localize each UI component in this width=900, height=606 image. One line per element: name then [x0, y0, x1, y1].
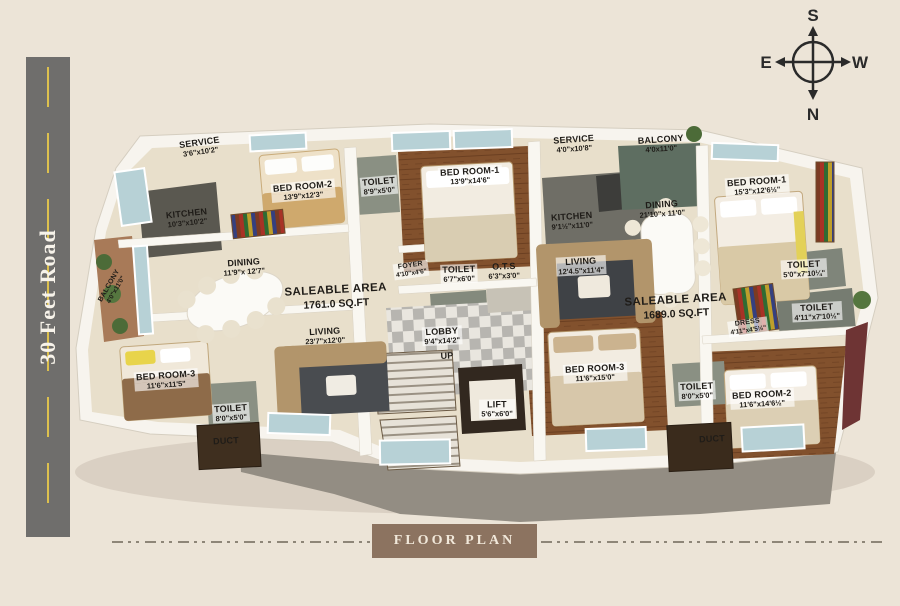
compass-east: E	[760, 53, 771, 72]
room-name: DUCT	[699, 433, 725, 445]
label-toilet-e: TOILET 4'11"x7'10½"	[792, 301, 843, 323]
label-duct-right: DUCT	[699, 433, 725, 445]
floor-plan-title: FLOOR PLAN	[372, 524, 537, 558]
label-toilet-c: TOILET 6'7"x6'0"	[440, 264, 478, 285]
label-dining-left: DINING 11'9"x 12'7"	[223, 256, 266, 278]
label-kitchen-mid: KITCHEN 9'1½"x11'0"	[551, 210, 594, 232]
label-bedroom3-mid: BED ROOM-3 11'6"x15'0"	[563, 362, 627, 385]
compass-west: W	[852, 53, 869, 72]
compass-north: N	[807, 105, 819, 124]
label-bedroom2-right: BED ROOM-2 11'6"x14'6½"	[730, 388, 794, 411]
label-toilet-d: TOILET 5'0"x7'10¼"	[781, 258, 828, 280]
label-saleable-right: SALEABLE AREA 1689.0 SQ.FT	[624, 291, 728, 322]
label-toilet-f: TOILET 8'0"x5'0"	[678, 380, 716, 401]
label-lobby: LOBBY 9'4"x14'2"	[422, 325, 463, 347]
compass: S N E W	[752, 2, 877, 127]
label-bedroom1-mid: BED ROOM-1 13'9"x14'6"	[438, 165, 502, 188]
road-strip: 30 Feet Road	[26, 57, 70, 537]
label-living-left: LIVING 23'7"x12'0"	[305, 325, 346, 347]
label-living-right: LIVING 12'4.5"x11'4"	[556, 255, 607, 277]
label-service-mid: SERVICE 4'0"x10'8"	[553, 133, 595, 155]
label-up: UP	[440, 350, 453, 361]
label-dining-right: DINING 21'10"x 11'0"	[639, 198, 686, 221]
room-dims: 6'7"x6'0"	[441, 274, 478, 284]
compass-rose-icon: S N E W	[752, 2, 877, 127]
room-name: UP	[440, 350, 453, 361]
compass-south: S	[807, 6, 818, 25]
room-dims: 5'6"x6'0"	[479, 410, 515, 419]
label-toilet-a: TOILET 8'9"x5'0"	[360, 175, 399, 198]
label-toilet-b: TOILET 8'0"x5'0"	[212, 402, 250, 424]
label-ots: O.T.S 6'3"x3'0"	[488, 261, 520, 282]
label-duct-left: DUCT	[213, 435, 239, 447]
label-balcony-right: BALCONY 4'0x11'0"	[637, 133, 684, 156]
room-dims: 6'3"x3'0"	[488, 271, 520, 281]
room-name: DUCT	[213, 435, 239, 447]
label-saleable-left: SALEABLE AREA 1761.0 SQ.FT	[284, 281, 388, 312]
label-lift: LIFT 5'6"x6'0"	[479, 399, 515, 419]
floor-plan-page: 30 Feet Road S N E W SERVICE 3'6"x10'2" …	[0, 0, 900, 606]
duct-box	[667, 422, 733, 471]
road-label: 30 Feet Road	[35, 229, 61, 364]
